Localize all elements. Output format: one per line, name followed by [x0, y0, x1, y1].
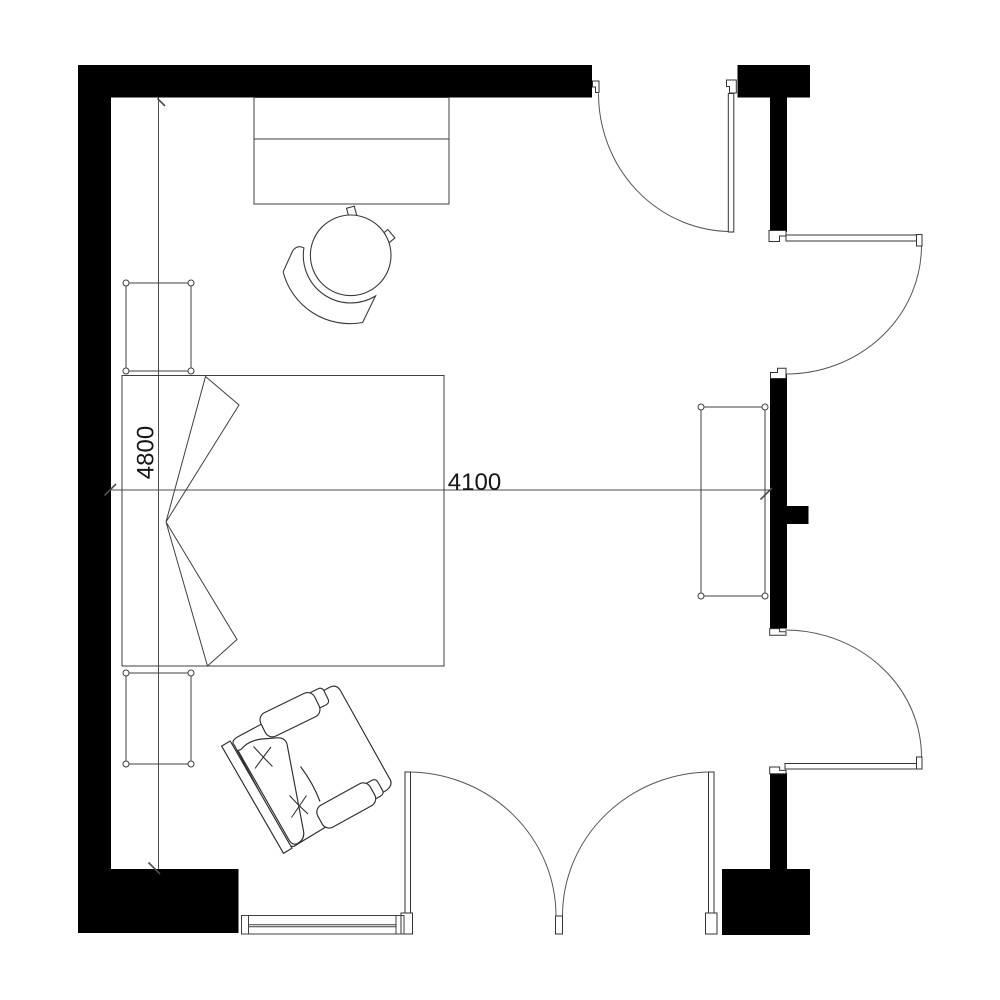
svg-text:4100: 4100 — [448, 469, 501, 496]
svg-text:4800: 4800 — [133, 426, 160, 479]
